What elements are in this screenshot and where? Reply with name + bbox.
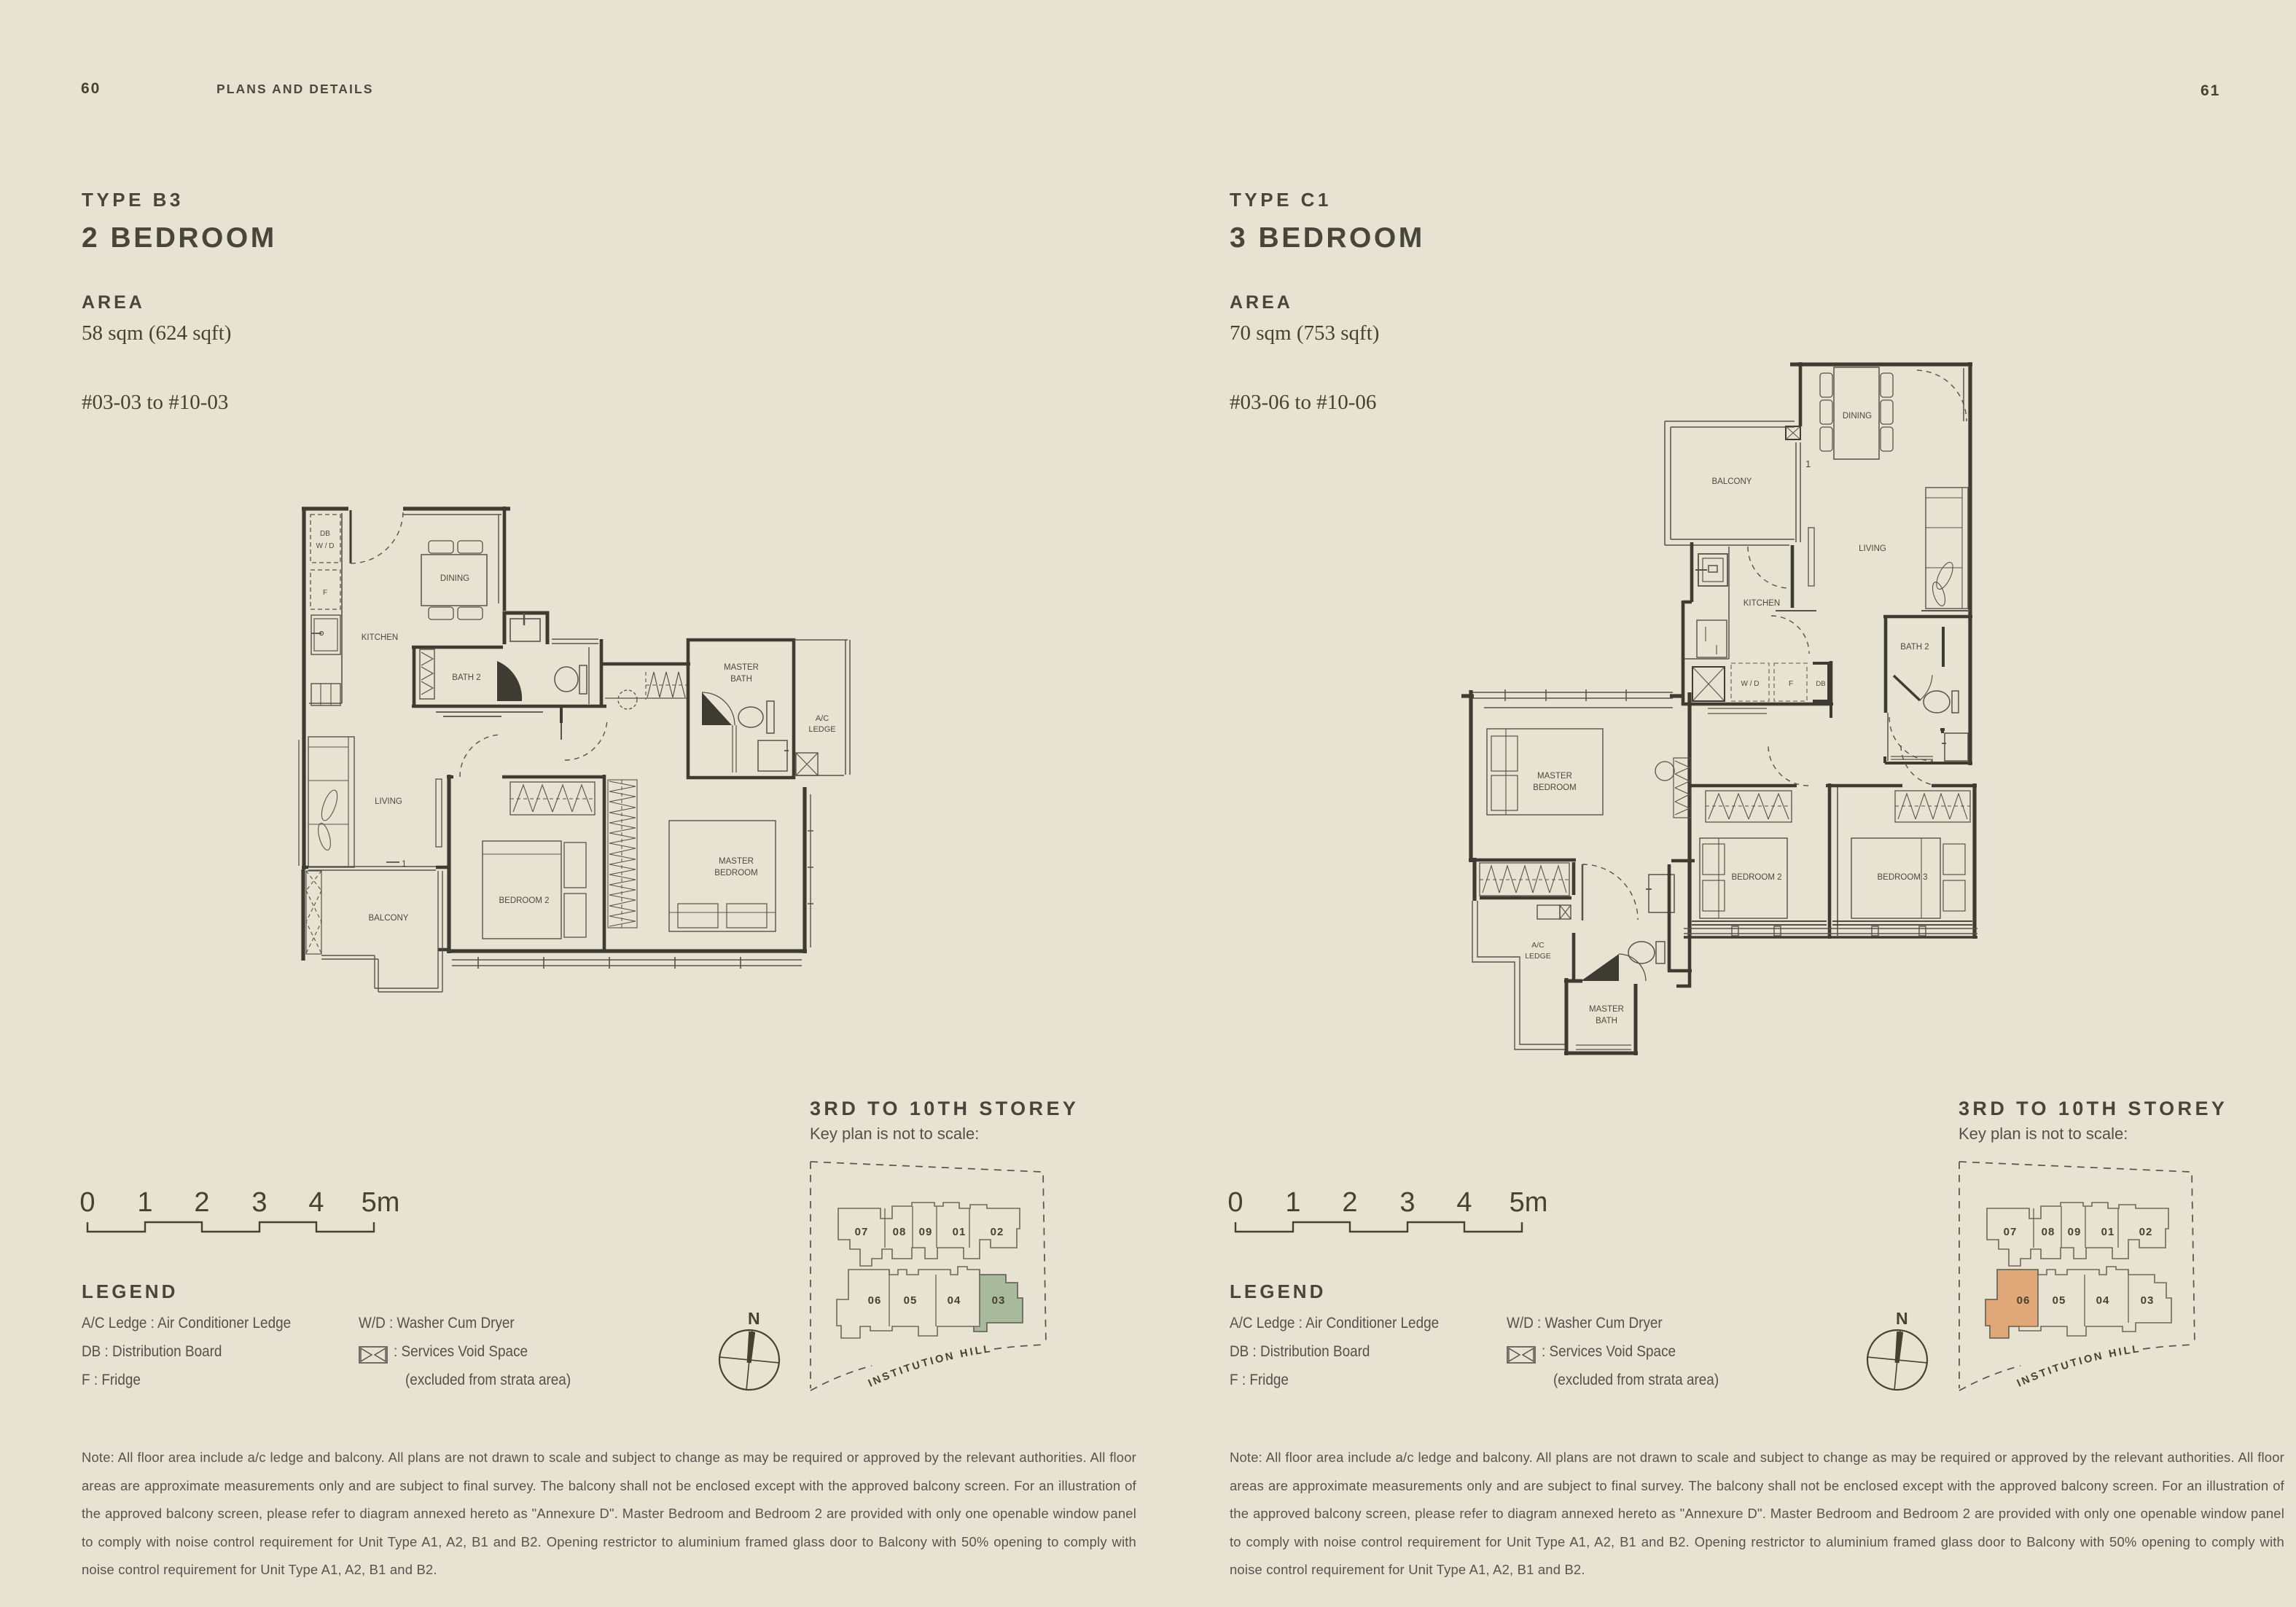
svg-text:BATH: BATH (1596, 1017, 1617, 1025)
svg-text:N: N (1896, 1309, 1908, 1328)
svg-text:5m: 5m (362, 1187, 400, 1218)
svg-text:LEDGE: LEDGE (1525, 952, 1551, 961)
svg-text:MASTER: MASTER (724, 663, 759, 672)
svg-text:07: 07 (855, 1226, 869, 1238)
svg-text:1: 1 (402, 859, 407, 869)
svg-text:A/C: A/C (1531, 941, 1545, 950)
svg-text:LIVING: LIVING (1859, 544, 1886, 553)
svg-text:01: 01 (953, 1226, 967, 1238)
svg-text:02: 02 (991, 1226, 1004, 1238)
svg-text:3: 3 (1399, 1187, 1415, 1218)
svg-text:LEDGE: LEDGE (808, 725, 835, 734)
svg-text:BALCONY: BALCONY (1712, 477, 1752, 486)
svg-text:06: 06 (2017, 1294, 2031, 1307)
svg-text:0: 0 (1227, 1187, 1243, 1218)
svg-text:03: 03 (992, 1294, 1006, 1307)
svg-text:F: F (1789, 680, 1793, 688)
svg-text:1: 1 (137, 1187, 152, 1218)
svg-text:3: 3 (251, 1187, 267, 1218)
svg-text:BEDROOM: BEDROOM (714, 869, 757, 877)
svg-text:2: 2 (194, 1187, 209, 1218)
svg-text:4: 4 (308, 1187, 324, 1218)
svg-text:1: 1 (1805, 458, 1811, 469)
svg-text:INSTITUTION HILL: INSTITUTION HILL (867, 1343, 993, 1390)
svg-text:BEDROOM: BEDROOM (1533, 783, 1576, 792)
svg-text:09: 09 (2068, 1226, 2082, 1238)
svg-text:W / D: W / D (1741, 680, 1760, 688)
svg-text:05: 05 (904, 1294, 918, 1307)
svg-text:BATH: BATH (730, 675, 752, 684)
svg-text:DB: DB (320, 530, 330, 538)
svg-text:BEDROOM 3: BEDROOM 3 (1877, 873, 1927, 882)
svg-text:BATH 2: BATH 2 (452, 673, 480, 682)
svg-text:03: 03 (2141, 1294, 2155, 1307)
svg-text:BEDROOM 2: BEDROOM 2 (1731, 873, 1781, 882)
svg-text:01: 01 (2101, 1226, 2115, 1238)
svg-text:09: 09 (919, 1226, 933, 1238)
svg-text:DINING: DINING (440, 574, 469, 583)
svg-text:DINING: DINING (1843, 412, 1872, 421)
svg-text:02: 02 (2139, 1226, 2153, 1238)
svg-text:04: 04 (2096, 1294, 2110, 1307)
svg-text:BALCONY: BALCONY (369, 914, 409, 923)
svg-text:W / D: W / D (316, 542, 335, 550)
svg-text:5m: 5m (1510, 1187, 1548, 1218)
svg-text:N: N (748, 1309, 760, 1328)
svg-text:INSTITUTION HILL: INSTITUTION HILL (2015, 1343, 2141, 1390)
svg-text:08: 08 (2042, 1226, 2055, 1238)
svg-text:2: 2 (1342, 1187, 1357, 1218)
svg-text:1: 1 (1285, 1187, 1300, 1218)
svg-text:MASTER: MASTER (1537, 772, 1572, 781)
svg-text:BATH 2: BATH 2 (1900, 643, 1929, 652)
svg-text:05: 05 (2053, 1294, 2066, 1307)
svg-text:F: F (323, 589, 327, 597)
svg-text:4: 4 (1456, 1187, 1472, 1218)
svg-text:LIVING: LIVING (375, 797, 402, 806)
svg-text:0: 0 (79, 1187, 95, 1218)
svg-text:MASTER: MASTER (719, 857, 754, 866)
svg-text:KITCHEN: KITCHEN (362, 633, 398, 642)
svg-text:BEDROOM 2: BEDROOM 2 (499, 896, 549, 905)
svg-text:04: 04 (948, 1294, 961, 1307)
svg-text:MASTER: MASTER (1589, 1005, 1624, 1014)
svg-text:KITCHEN: KITCHEN (1744, 599, 1780, 608)
svg-text:DB: DB (1816, 680, 1825, 688)
svg-text:08: 08 (893, 1226, 907, 1238)
svg-text:07: 07 (2004, 1226, 2018, 1238)
svg-text:A/C: A/C (816, 714, 829, 723)
svg-text:06: 06 (868, 1294, 882, 1307)
